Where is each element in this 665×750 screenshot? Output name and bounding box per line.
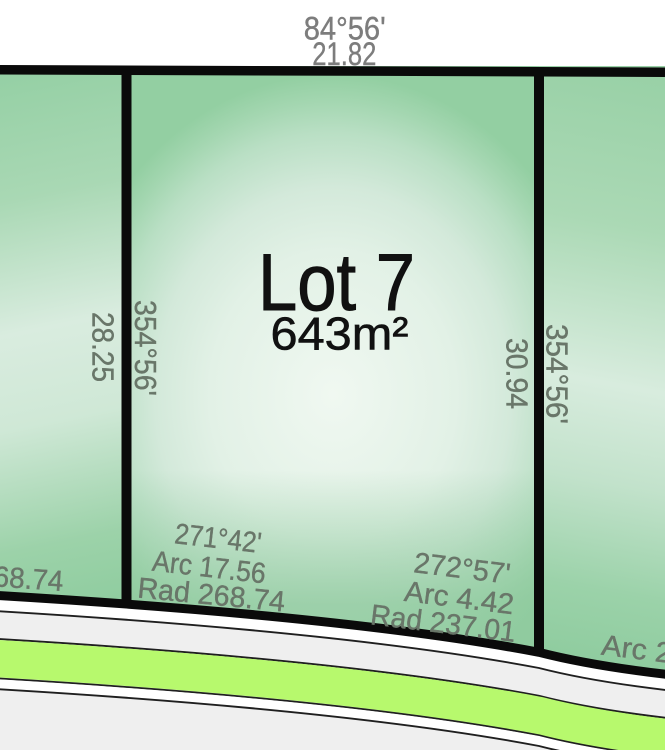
svg-text:28.25: 28.25 bbox=[86, 312, 121, 382]
svg-text:354°56': 354°56' bbox=[540, 324, 575, 424]
svg-text:21.82: 21.82 bbox=[312, 36, 376, 72]
svg-text:30.94: 30.94 bbox=[500, 338, 535, 409]
svg-text:354°56': 354°56' bbox=[128, 300, 163, 396]
svg-text:643m²: 643m² bbox=[271, 307, 409, 359]
